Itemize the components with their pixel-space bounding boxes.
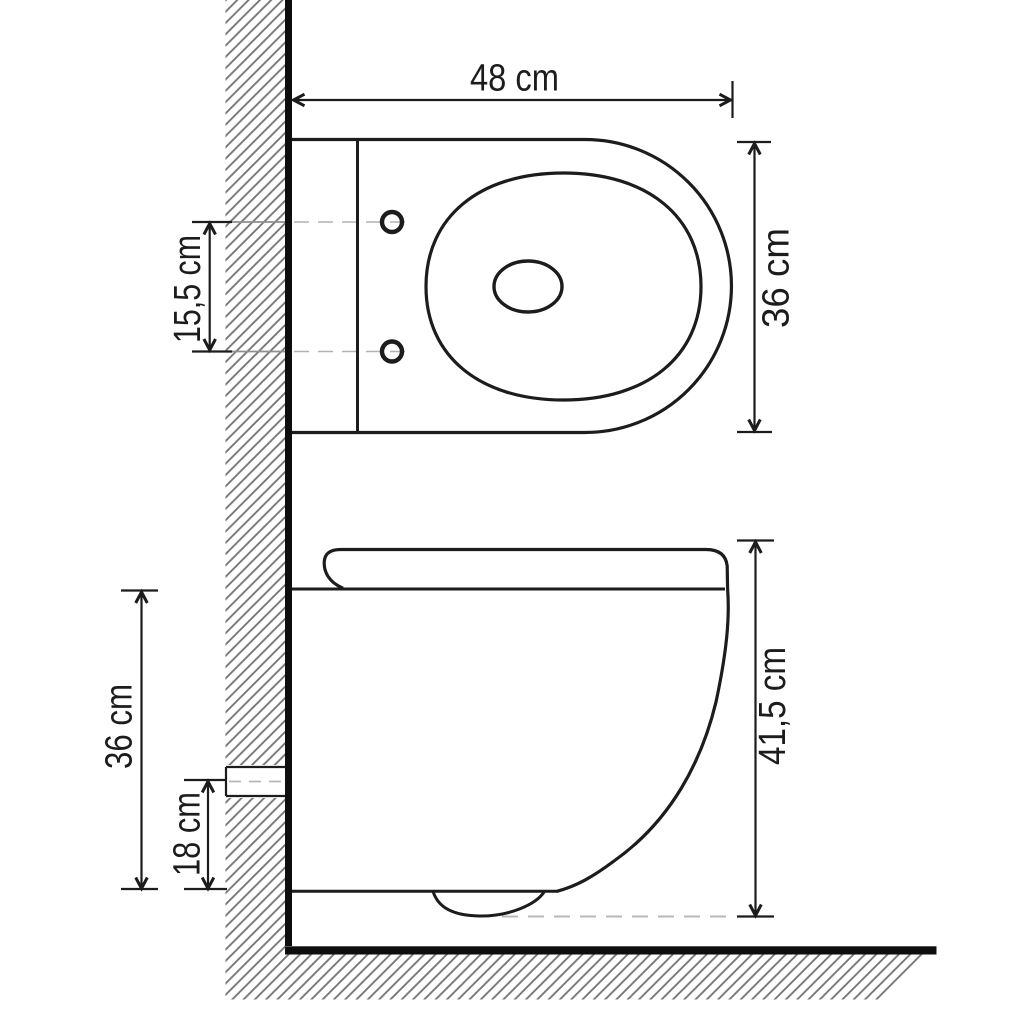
svg-text:41,5 cm: 41,5 cm (752, 647, 794, 765)
svg-text:18 cm: 18 cm (167, 792, 209, 876)
svg-text:36 cm: 36 cm (756, 228, 798, 328)
svg-text:36 cm: 36 cm (99, 684, 141, 769)
svg-text:48 cm: 48 cm (470, 58, 559, 100)
svg-text:15,5 cm: 15,5 cm (167, 235, 209, 343)
